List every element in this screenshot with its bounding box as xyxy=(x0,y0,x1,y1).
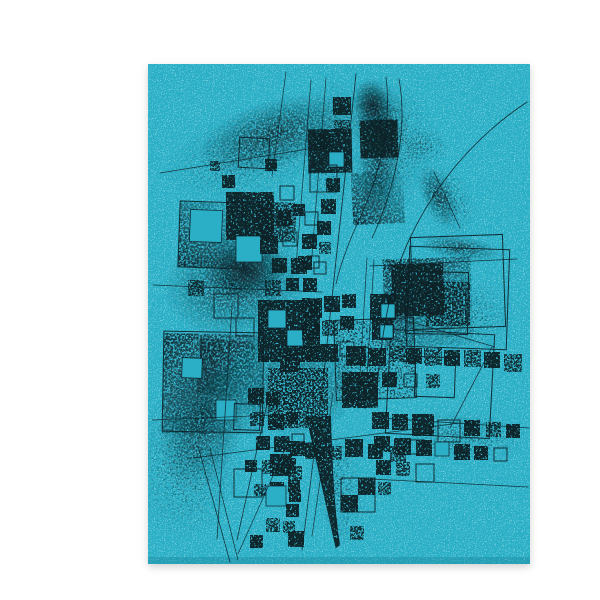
art-square-d xyxy=(394,438,411,455)
art-square-m xyxy=(378,482,391,495)
art-square-d xyxy=(303,278,317,292)
art-square-d xyxy=(392,414,408,430)
art-square-d xyxy=(288,531,304,547)
art-square-m xyxy=(250,412,264,426)
art-square-d xyxy=(248,388,264,404)
art-square-d xyxy=(268,414,284,430)
art-square-gbl xyxy=(351,171,406,226)
art-square-h xyxy=(236,236,262,262)
art-square-d xyxy=(416,440,432,456)
art-square-d xyxy=(484,352,500,368)
art-square-d xyxy=(506,424,520,438)
art-square-m xyxy=(486,422,501,437)
art-square-m xyxy=(390,346,406,362)
art-square-m xyxy=(504,354,522,372)
art-square-h xyxy=(266,486,286,506)
art-square-d xyxy=(293,204,305,216)
art-square-d xyxy=(250,535,263,548)
art-square-d xyxy=(454,444,470,460)
art-square-d xyxy=(274,436,290,452)
art-square-m xyxy=(424,348,442,366)
art-square-h xyxy=(268,310,286,328)
art-square-d xyxy=(464,420,480,436)
paper-edge-shadow xyxy=(148,557,530,564)
art-square-d xyxy=(286,278,299,291)
art-square-m xyxy=(322,320,338,336)
art-square-m xyxy=(334,120,350,136)
art-square-d xyxy=(321,199,336,214)
art-square-d xyxy=(406,348,422,364)
art-square-d xyxy=(265,159,277,171)
art-square-h xyxy=(189,209,222,242)
art-square-d xyxy=(320,344,338,362)
art-square-d xyxy=(341,495,358,512)
art-spray-cloud xyxy=(399,126,451,166)
art-square-d xyxy=(222,175,235,188)
art-square-d xyxy=(326,178,340,192)
abstract-print-photo xyxy=(40,16,600,600)
art-square-d xyxy=(444,350,460,366)
art-square-d xyxy=(276,210,292,226)
art-square-d xyxy=(260,236,278,254)
art-square-d xyxy=(342,294,356,308)
art-square-m xyxy=(284,390,300,406)
art-square-d xyxy=(346,346,366,366)
art-square-d xyxy=(372,412,389,429)
art-square-m xyxy=(464,350,481,367)
art-square-m xyxy=(210,161,220,171)
art-square-d xyxy=(302,322,320,340)
art-square-d xyxy=(359,119,398,158)
art-square-m xyxy=(266,518,280,532)
art-square-d xyxy=(289,490,301,502)
art-square-m xyxy=(426,282,470,326)
art-square-h xyxy=(380,325,393,338)
art-square-d xyxy=(302,346,318,362)
art-square-d xyxy=(474,446,488,460)
art-square-m xyxy=(350,526,364,540)
art-square-m xyxy=(188,280,204,296)
art-square-h xyxy=(435,442,449,456)
art-square-d xyxy=(368,348,386,366)
art-square-gtl xyxy=(197,339,256,398)
art-square-d xyxy=(266,392,280,406)
art-square-d xyxy=(317,221,331,235)
art-square-d xyxy=(302,234,317,249)
artwork-canvas xyxy=(40,16,600,600)
art-square-d xyxy=(345,439,363,457)
art-square-d xyxy=(272,258,287,273)
art-square-d xyxy=(376,460,391,475)
art-square-d xyxy=(286,412,298,424)
art-square-d xyxy=(382,372,397,387)
art-square-d xyxy=(286,504,299,517)
art-square-h xyxy=(287,330,303,346)
art-square-m xyxy=(426,374,440,388)
art-square-m xyxy=(254,484,266,496)
art-square-d xyxy=(333,97,351,115)
art-square-h xyxy=(182,358,203,379)
art-square-m xyxy=(396,462,410,476)
art-square-d xyxy=(291,258,307,274)
art-square-m xyxy=(319,242,331,254)
art-square-d xyxy=(280,352,300,372)
art-square-d xyxy=(302,298,322,318)
art-square-d xyxy=(412,414,434,436)
art-square-d xyxy=(340,316,354,330)
art-square-m xyxy=(265,280,281,296)
art-square-d xyxy=(245,460,257,472)
art-square-d xyxy=(374,436,390,452)
art-square-d xyxy=(358,478,375,495)
